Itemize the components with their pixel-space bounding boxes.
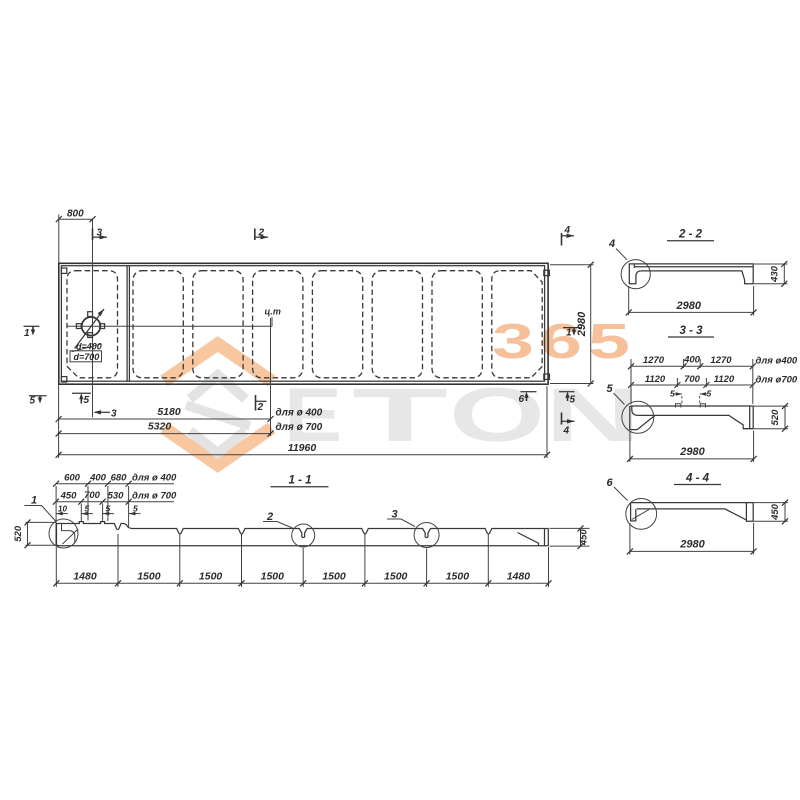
svg-text:450: 450: [60, 491, 78, 502]
svg-text:2: 2: [257, 402, 264, 413]
svg-text:для ø 400: для ø 400: [132, 473, 177, 484]
svg-text:2980: 2980: [676, 300, 702, 312]
svg-text:700: 700: [84, 490, 101, 501]
svg-text:700: 700: [684, 374, 701, 385]
svg-text:520: 520: [13, 525, 24, 542]
svg-text:1270: 1270: [643, 355, 665, 366]
svg-text:400: 400: [89, 473, 107, 484]
svg-text:2 - 2: 2 - 2: [678, 229, 703, 241]
svg-text:1500: 1500: [322, 571, 346, 583]
svg-text:450: 450: [579, 529, 590, 547]
svg-text:10: 10: [58, 505, 67, 514]
svg-text:5: 5: [85, 504, 90, 514]
svg-text:3: 3: [111, 409, 117, 420]
svg-text:4: 4: [564, 225, 571, 236]
svg-text:1500: 1500: [199, 571, 223, 583]
svg-text:3 - 3: 3 - 3: [679, 325, 703, 337]
svg-text:4: 4: [563, 426, 570, 437]
svg-text:6: 6: [607, 477, 614, 489]
svg-text:680: 680: [111, 473, 128, 484]
svg-text:5: 5: [84, 395, 90, 406]
svg-text:1480: 1480: [507, 571, 531, 583]
svg-text:5180: 5180: [157, 406, 181, 418]
svg-text:1: 1: [31, 495, 37, 507]
svg-text:3: 3: [97, 228, 103, 239]
svg-text:450: 450: [770, 503, 781, 521]
svg-text:5: 5: [707, 389, 712, 399]
svg-text:11960: 11960: [288, 442, 317, 454]
svg-text:5: 5: [588, 315, 630, 369]
svg-text:600: 600: [64, 473, 81, 484]
svg-text:1: 1: [566, 328, 572, 339]
svg-text:5: 5: [570, 395, 576, 406]
svg-text:2980: 2980: [576, 311, 588, 337]
svg-text:1500: 1500: [384, 571, 408, 583]
svg-text:1500: 1500: [137, 571, 161, 583]
svg-text:1120: 1120: [714, 374, 735, 385]
svg-text:для ø 700: для ø 700: [276, 422, 323, 433]
svg-text:1270: 1270: [710, 355, 732, 366]
svg-text:520: 520: [770, 409, 781, 426]
svg-text:4 - 4: 4 - 4: [685, 473, 710, 485]
svg-text:4: 4: [608, 238, 615, 250]
svg-text:для ø 700: для ø 700: [132, 491, 177, 502]
svg-text:ц.т: ц.т: [265, 307, 281, 317]
svg-text:1120: 1120: [645, 374, 666, 385]
svg-text:для ø700: для ø700: [756, 375, 798, 386]
svg-text:6: 6: [519, 394, 525, 405]
svg-text:5: 5: [30, 396, 36, 407]
svg-text:400: 400: [683, 355, 701, 366]
svg-text:2: 2: [258, 228, 265, 239]
svg-text:d=700: d=700: [74, 352, 100, 362]
svg-text:5: 5: [607, 383, 614, 395]
svg-text:1 - 1: 1 - 1: [288, 475, 311, 487]
svg-text:430: 430: [770, 265, 781, 283]
svg-text:N: N: [545, 373, 641, 458]
svg-text:5: 5: [670, 389, 675, 399]
svg-text:T: T: [352, 373, 448, 458]
svg-text:для ø400: для ø400: [756, 356, 798, 367]
svg-text:1500: 1500: [261, 571, 285, 583]
svg-text:530: 530: [108, 491, 125, 502]
svg-text:5: 5: [133, 504, 138, 514]
svg-text:2980: 2980: [679, 446, 705, 458]
svg-text:для ø 400: для ø 400: [276, 408, 323, 419]
svg-text:3: 3: [492, 315, 534, 369]
svg-text:2980: 2980: [679, 539, 705, 551]
svg-text:1480: 1480: [73, 571, 97, 583]
svg-text:1: 1: [24, 328, 30, 339]
svg-text:800: 800: [67, 209, 84, 220]
svg-text:1500: 1500: [446, 571, 470, 583]
svg-text:5320: 5320: [148, 421, 172, 433]
svg-text:O: O: [449, 373, 545, 458]
